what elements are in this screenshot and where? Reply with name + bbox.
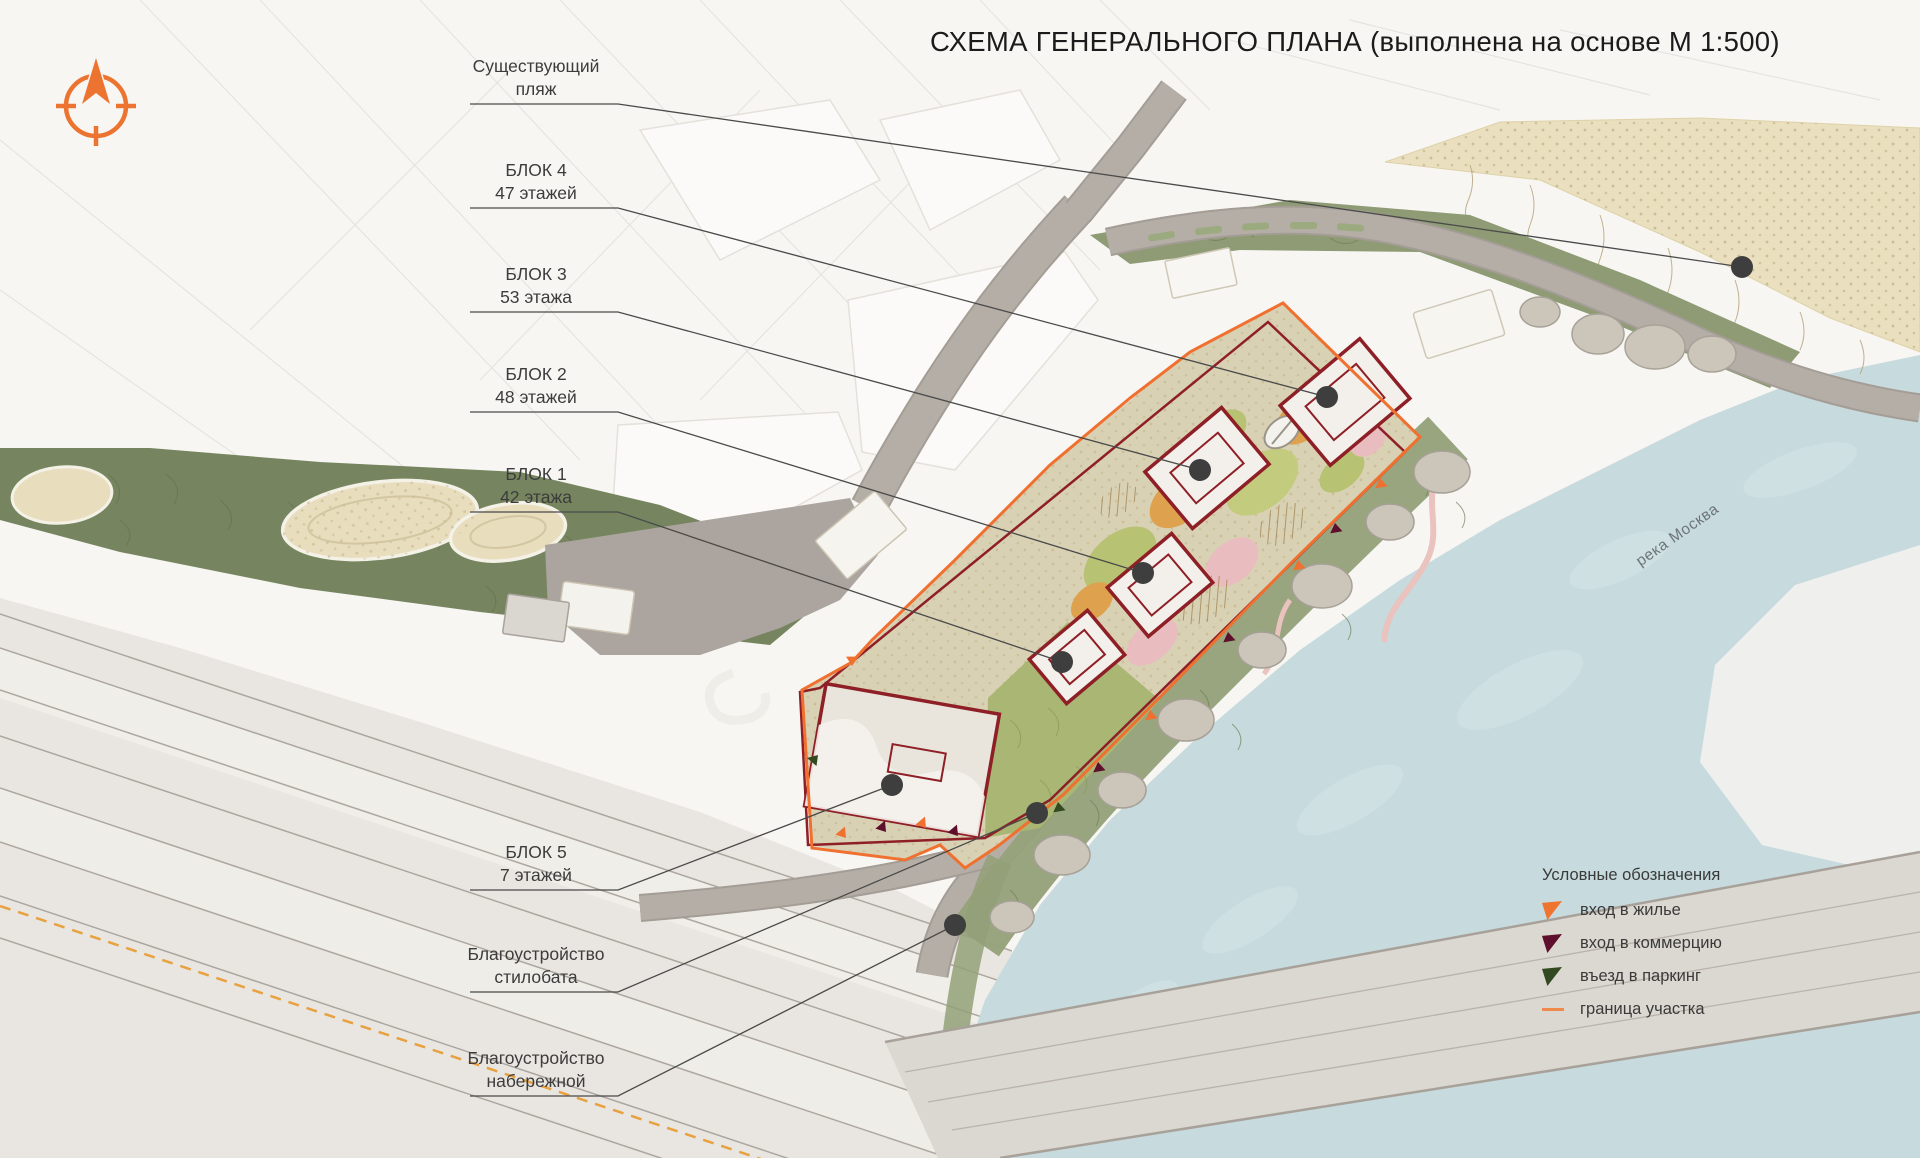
legend-item-housing-entrance: вход в жилье bbox=[1542, 901, 1722, 920]
parking-entrance-triangle-icon bbox=[1542, 967, 1562, 986]
masterplan-page: СХЕМА ГЕНЕРАЛЬНОГО ПЛАНА (выполнена на о… bbox=[0, 0, 1920, 1158]
legend: Условные обозначения вход в жилье вход в… bbox=[1542, 866, 1722, 1033]
site-boundary-line-icon bbox=[1542, 1008, 1564, 1011]
callout-block-5: БЛОК 5 7 этажей bbox=[386, 841, 686, 887]
commerce-entrance-triangle-icon bbox=[1542, 934, 1562, 953]
callout-block-1: БЛОК 1 42 этажа bbox=[386, 463, 686, 509]
legend-item-commerce-entrance: вход в коммерцию bbox=[1542, 934, 1722, 953]
legend-item-parking-entrance: въезд в паркинг bbox=[1542, 967, 1722, 986]
callout-stylobate-landscaping: Благоустройство стилобата bbox=[386, 943, 686, 989]
housing-entrance-triangle-icon bbox=[1542, 901, 1562, 920]
callout-embankment-landscaping: Благоустройство набережной bbox=[386, 1047, 686, 1093]
callout-block-3: БЛОК 3 53 этажа bbox=[386, 263, 686, 309]
callout-block-2: БЛОК 2 48 этажей bbox=[386, 363, 686, 409]
legend-heading: Условные обозначения bbox=[1542, 866, 1722, 885]
utility-building bbox=[503, 594, 570, 642]
callout-block-4: БЛОК 4 47 этажей bbox=[386, 159, 686, 205]
legend-item-site-boundary: граница участка bbox=[1542, 1000, 1722, 1019]
callout-existing-beach: Существующий пляж bbox=[386, 55, 686, 101]
page-title: СХЕМА ГЕНЕРАЛЬНОГО ПЛАНА (выполнена на о… bbox=[930, 26, 1780, 58]
